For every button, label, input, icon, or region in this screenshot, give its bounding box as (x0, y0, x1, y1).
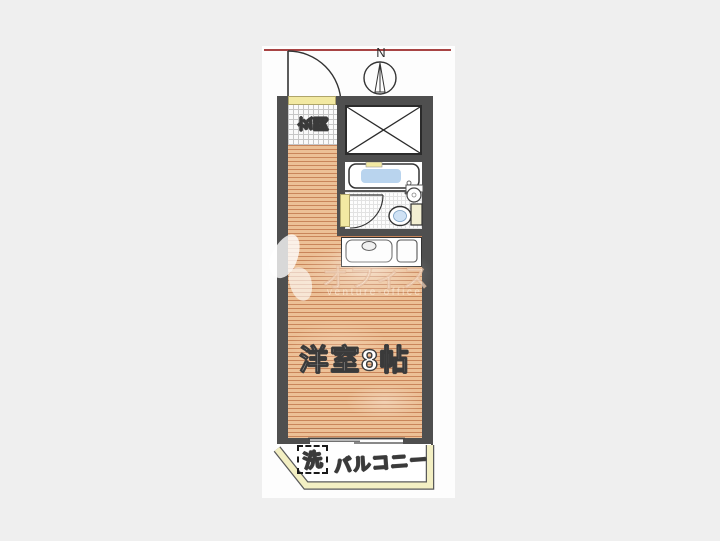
genkan-label: 玄関 (298, 116, 328, 133)
wall-right (422, 96, 433, 445)
entry-threshold (288, 96, 336, 105)
wall-left (277, 96, 288, 443)
kitchen-counter-icon (342, 238, 420, 265)
room-label: 洋室8帖 (288, 337, 422, 379)
kitchen-area (341, 237, 422, 267)
wall-top (336, 96, 433, 105)
toilet-area (345, 192, 422, 229)
washer-box: 洗 (297, 445, 328, 474)
toilet-icon (389, 204, 422, 226)
corridor-floor (288, 145, 337, 236)
wash-basin-icon (405, 185, 424, 202)
washer-label: 洗 (301, 445, 324, 474)
toilet-door-arc (350, 195, 383, 228)
compass-north-label: N (372, 45, 390, 60)
bathroom-threshold (340, 194, 350, 227)
genkan-area: 玄関 (288, 105, 337, 145)
closet-x-icon (345, 105, 422, 155)
wall-closet-bottom (345, 155, 422, 162)
floor-plan-page: N 玄関 (0, 0, 720, 541)
